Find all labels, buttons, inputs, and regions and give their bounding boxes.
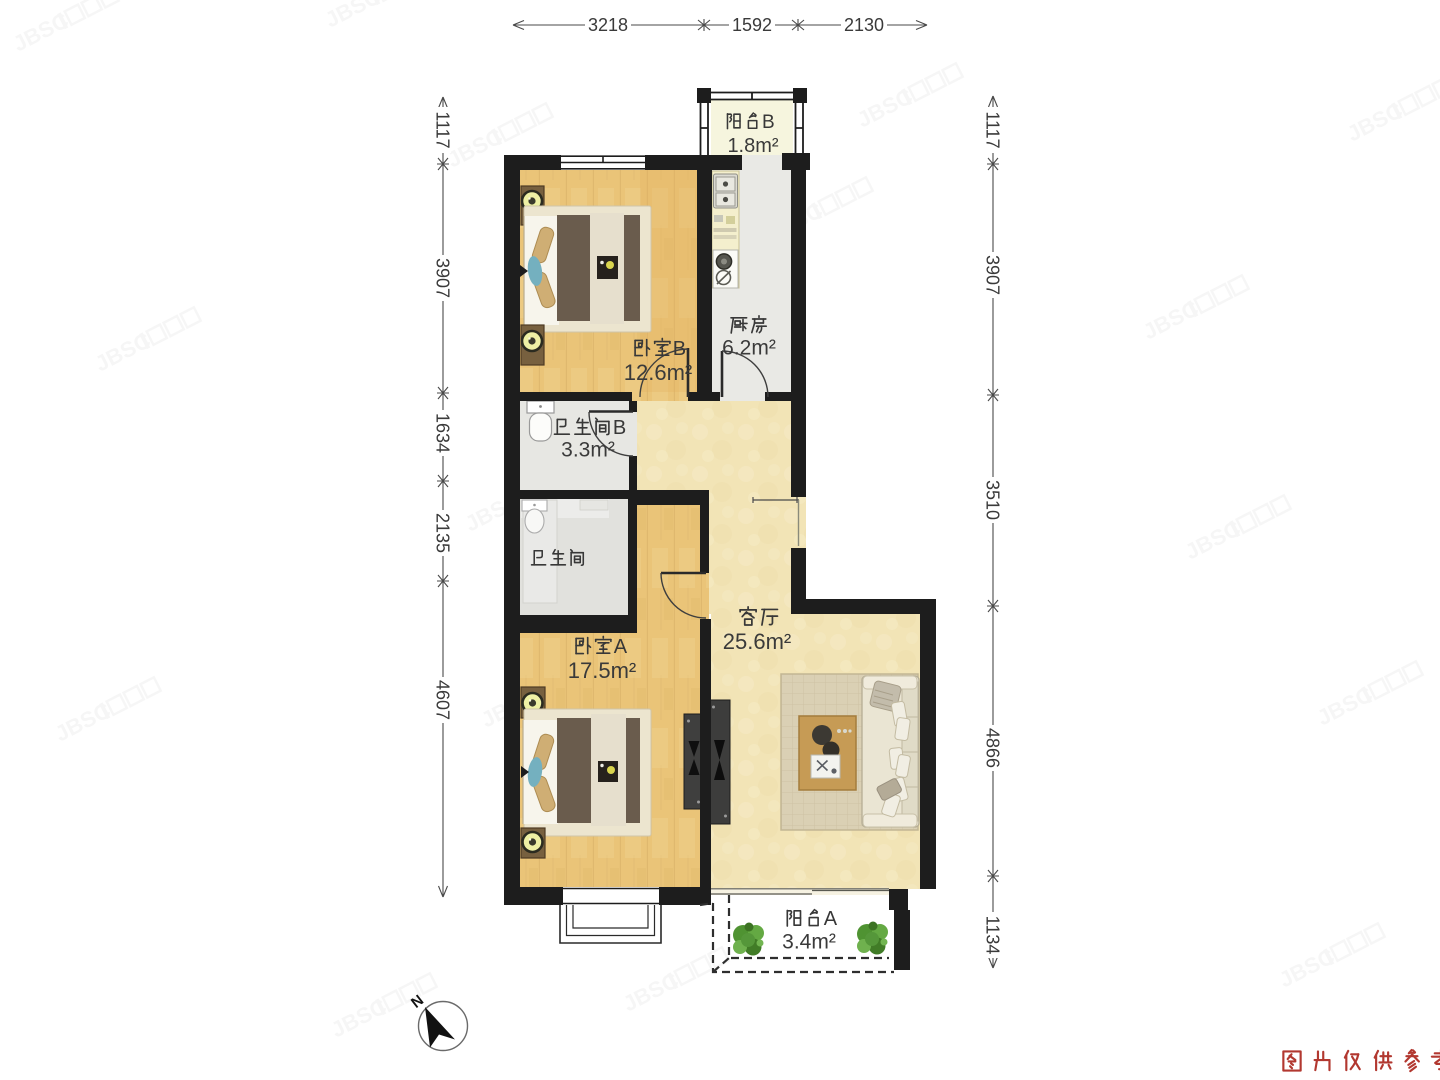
svg-text:3907: 3907: [983, 255, 1003, 295]
svg-text:1117: 1117: [433, 111, 453, 148]
svg-text:1134: 1134: [983, 916, 1003, 955]
svg-text:17.5m²: 17.5m²: [568, 658, 636, 683]
svg-text:1592: 1592: [732, 15, 772, 35]
svg-text:3218: 3218: [588, 15, 628, 35]
svg-text:B: B: [613, 417, 626, 439]
svg-text:3510: 3510: [983, 480, 1003, 520]
svg-text:B: B: [762, 112, 775, 133]
svg-text:4607: 4607: [433, 680, 453, 720]
svg-text:A: A: [824, 908, 838, 930]
svg-text:3.4m²: 3.4m²: [782, 931, 836, 954]
svg-text:A: A: [614, 636, 628, 658]
svg-text:4866: 4866: [983, 728, 1003, 768]
svg-text:6.2m²: 6.2m²: [722, 337, 776, 360]
svg-text:1117: 1117: [983, 111, 1003, 148]
svg-text:25.6m²: 25.6m²: [723, 629, 791, 654]
svg-text:2130: 2130: [844, 15, 884, 35]
svg-text:1634: 1634: [433, 413, 453, 453]
svg-text:3907: 3907: [433, 258, 453, 298]
svg-text:1.8m²: 1.8m²: [727, 135, 778, 157]
svg-text:B: B: [673, 338, 686, 360]
svg-text:2135: 2135: [433, 513, 453, 553]
svg-text:3.3m²: 3.3m²: [561, 439, 615, 462]
svg-text:12.6m²: 12.6m²: [624, 360, 692, 385]
